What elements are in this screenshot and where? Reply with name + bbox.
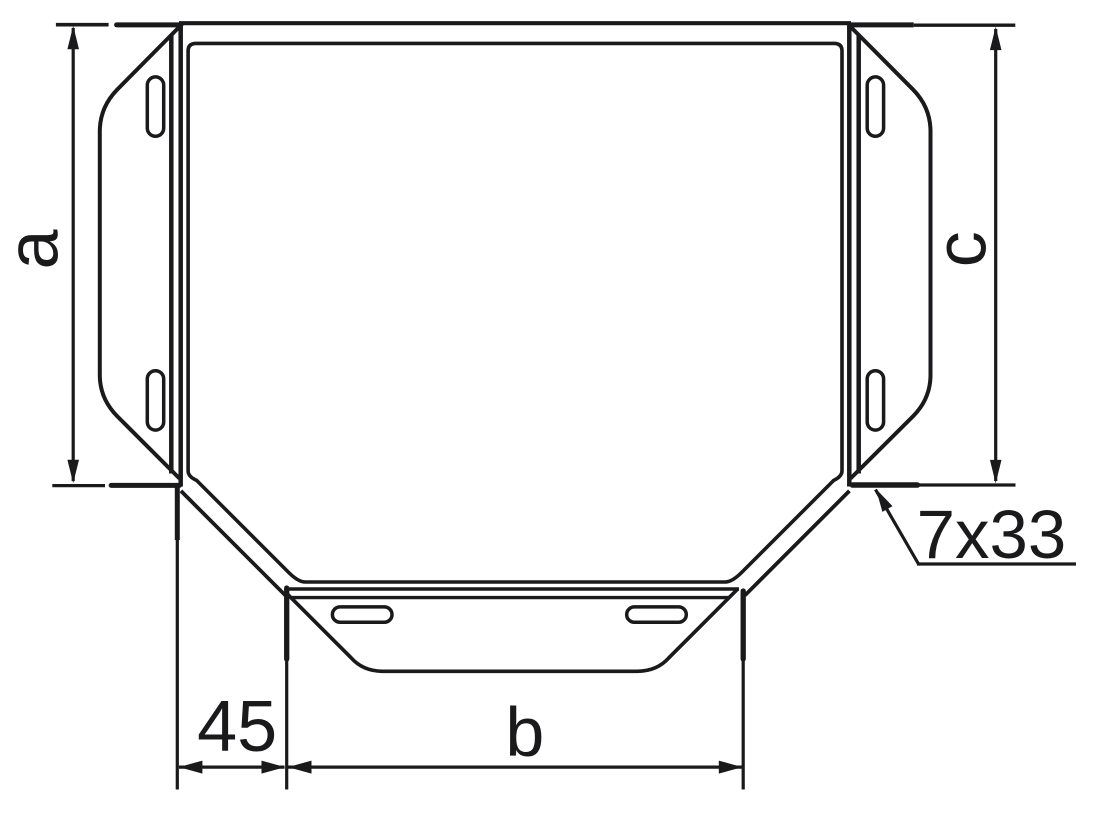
svg-text:45: 45 [197, 687, 277, 767]
svg-text:c: c [922, 231, 1002, 267]
svg-text:b: b [505, 693, 544, 771]
svg-text:7x33: 7x33 [917, 496, 1067, 573]
svg-text:a: a [0, 229, 74, 270]
